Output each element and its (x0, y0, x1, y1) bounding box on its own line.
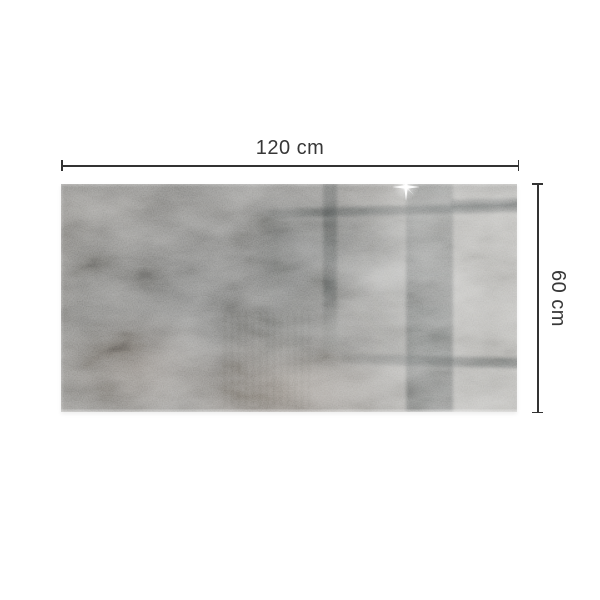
tile-bottom-edge-bevel (61, 409, 517, 412)
height-dimension-label: 60 cm (545, 183, 571, 413)
width-dimension-label: 120 cm (61, 137, 519, 159)
tile-product-photo (61, 184, 517, 412)
glossy-sheen-overlay (61, 184, 517, 412)
height-dimension-line (537, 183, 539, 413)
product-dimension-image: 120 cm 60 cm (0, 0, 600, 600)
width-dimension-line (61, 165, 519, 167)
lens-flare-sparkle-icon (392, 173, 420, 201)
